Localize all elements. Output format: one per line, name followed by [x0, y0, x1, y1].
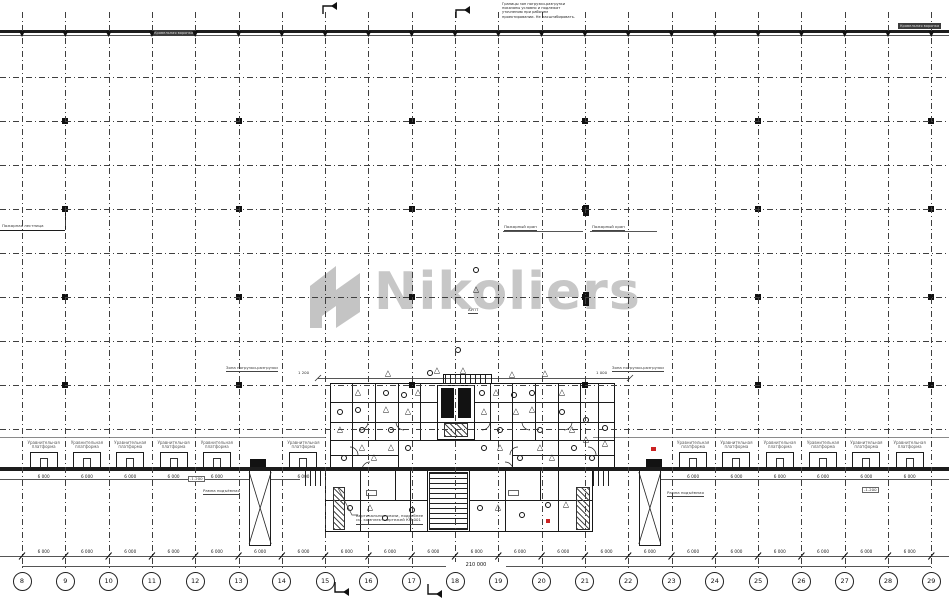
bay-dimension: 6 000 — [548, 549, 578, 554]
sub-bay-dimension: 6 000 — [808, 474, 838, 479]
bay-dimension: 6 000 — [332, 549, 362, 554]
dock-label: Уравнительнаяплатформа — [890, 441, 930, 450]
grid-line-vertical — [628, 12, 629, 571]
core-w15 — [330, 383, 615, 470]
grid-line-vertical — [412, 12, 413, 571]
grid-line-vertical — [585, 12, 586, 571]
dock-label: Уравнительнаяплатформа — [154, 441, 194, 450]
fixture-triangle-icon: △ — [473, 286, 479, 294]
grid-line-horizontal — [0, 297, 949, 298]
fire-hydrant-label-left: Пожарный кран — [504, 225, 537, 231]
section-flag-icon — [428, 584, 442, 594]
bay-dimension: 6 000 — [765, 549, 795, 554]
grid-line-vertical — [758, 12, 759, 571]
axis-bubble: 27 — [835, 572, 854, 591]
grid-line-vertical — [542, 12, 543, 571]
bay-dimension: 6 000 — [159, 549, 189, 554]
fixture-triangle-icon: △ — [434, 367, 440, 375]
axis-bubble: 11 — [142, 572, 161, 591]
grid-line-vertical — [455, 12, 456, 571]
sub-bay-dimension: 6 000 — [159, 474, 189, 479]
red-mark — [651, 447, 656, 451]
grid-line-vertical — [282, 12, 283, 571]
grid-line-vertical — [368, 12, 369, 571]
fixture-triangle-icon: △ — [385, 370, 391, 378]
axis-bubble: 22 — [619, 572, 638, 591]
partition-line — [593, 437, 949, 438]
fire-hydrant-label-right: Пожарный кран — [592, 225, 625, 231]
sub-bay-dimension: 6 000 — [115, 474, 145, 479]
loading-zone-dim-right: 1 000 — [596, 371, 607, 375]
top-wall-inner-line — [0, 35, 949, 36]
loading-zone-label-right: Зона погрузки-разгрузки — [612, 366, 664, 372]
grid-line-vertical — [672, 12, 673, 571]
fixture-circle-icon — [473, 267, 479, 273]
level-box-right: -1.200 — [862, 487, 879, 493]
bay-dimension: 6 000 — [505, 549, 535, 554]
top-note: Границы зон погрузки-разгрузки показаны … — [502, 2, 575, 19]
grid-line-vertical — [801, 12, 802, 571]
bracing-note-line: см. комплект чертежей КМ-001 — [356, 518, 423, 522]
grid-line-horizontal — [0, 209, 949, 210]
core-stH — [593, 470, 613, 486]
dock-label: Уравнительнаяплатформа — [24, 441, 64, 450]
dock-label: Уравнительнаяплатформа — [760, 441, 800, 450]
dock-ramp — [639, 470, 661, 546]
sub-bay-dimension: 6 000 — [29, 474, 59, 479]
section-flag-icon — [335, 582, 349, 592]
axis-bubble: 26 — [792, 572, 811, 591]
section-flag-icon — [456, 10, 470, 18]
loading-zone-label-left: Зона погрузки-разгрузки — [226, 366, 278, 372]
bay-dimension: 6 000 — [245, 549, 275, 554]
grid-line-horizontal — [0, 121, 949, 122]
grid-line-horizontal — [0, 341, 949, 342]
grid-line-vertical — [22, 12, 23, 571]
sub-bay-dimension: 6 000 — [895, 474, 925, 479]
partition-line — [590, 231, 657, 232]
fixture-circle-icon — [427, 370, 433, 376]
grid-line-vertical — [109, 12, 110, 571]
nikoliers-logo-icon — [306, 264, 368, 332]
sub-bay-dimension: 6 000 — [72, 474, 102, 479]
sub-bay-dimension: 6 000 — [678, 474, 708, 479]
grid-line-horizontal — [0, 77, 949, 78]
axis-bubble: 10 — [99, 572, 118, 591]
watermark: Nikoliers — [306, 262, 646, 337]
bay-dimension: 6 000 — [462, 549, 492, 554]
axis-bubble: 17 — [402, 572, 421, 591]
bay-dimension: 6 000 — [29, 549, 59, 554]
bay-dimension: 6 000 — [635, 549, 665, 554]
bay-dimension: 6 000 — [592, 549, 622, 554]
bottom-wall — [0, 467, 949, 471]
top-wall — [0, 30, 949, 33]
dock-label: Уравнительнаяплатформа — [716, 441, 756, 450]
dock-ramp — [249, 470, 271, 546]
axis-bubble: 23 — [662, 572, 681, 591]
partition-line — [0, 437, 325, 438]
sub-bay-dimension: 6 000 — [851, 474, 881, 479]
axis-bubble: 12 — [186, 572, 205, 591]
ramp-label-left: Рампа подъёмная — [203, 489, 240, 495]
axis-bubble: 20 — [532, 572, 551, 591]
axis-bubble: 24 — [705, 572, 724, 591]
bay-dimension: 6 000 — [72, 549, 102, 554]
partition-line — [0, 230, 65, 231]
axis-bubble: 19 — [489, 572, 508, 591]
axis-bubble: 21 — [575, 572, 594, 591]
total-dimension: 210 000 — [446, 562, 506, 568]
axis-bubble: 14 — [272, 572, 291, 591]
top-note-line: проектировании. Не масштабировать. — [502, 15, 575, 19]
loading-zone-dim-left: 1 200 — [298, 371, 309, 375]
grid-line-horizontal — [0, 429, 949, 430]
bay-dimension: 6 000 — [375, 549, 405, 554]
section-flag-icon — [464, 6, 470, 14]
watermark-text: Nikoliers — [374, 266, 641, 318]
partition-line — [503, 231, 583, 232]
dock-label: Уравнительнаяплатформа — [67, 441, 107, 450]
bay-dimension: 6 000 — [808, 549, 838, 554]
axis-bubble: 8 — [13, 572, 32, 591]
bracing-note: Вертикальные связи, подробнее см. компле… — [356, 514, 423, 525]
left-edge-label: Пожарная лестница — [2, 224, 44, 228]
sub-bay-dimension: 6 000 — [721, 474, 751, 479]
level-box-left: -1.200 — [188, 476, 205, 482]
core-fill — [646, 459, 662, 467]
section-flag-icon — [331, 2, 337, 10]
bay-dimension: 6 000 — [202, 549, 232, 554]
grid-line-vertical — [152, 12, 153, 571]
ramp-label-right: Рампа подъёмная — [667, 491, 704, 497]
axis-bubble: 16 — [359, 572, 378, 591]
section-flag-icon — [436, 590, 442, 598]
sub-bay-dimension: 6 000 — [202, 474, 232, 479]
dock-label: Уравнительнаяплатформа — [673, 441, 713, 450]
grid-line-vertical — [888, 12, 889, 571]
bay-dimension: 6 000 — [721, 549, 751, 554]
floor-plan-canvas: Nikoliers △△△△△△△△△△△△△△△△△△△△△△△△△△△△6 … — [0, 0, 949, 600]
grid-line-horizontal — [0, 385, 949, 386]
grid-line-vertical — [498, 12, 499, 571]
bay-dimension: 6 000 — [678, 549, 708, 554]
bay-dimension: 6 000 — [851, 549, 881, 554]
axis-bubble: 25 — [749, 572, 768, 591]
fixture-triangle-icon: △ — [542, 370, 548, 378]
dock-label: Уравнительнаяплатформа — [846, 441, 886, 450]
sub-bay-dimension: 6 000 — [288, 474, 318, 479]
roof-drain-label-left: Кровельная воронка — [152, 30, 195, 36]
aupt-label: АУПТ — [468, 308, 478, 314]
axis-bubble: 13 — [229, 572, 248, 591]
grid-line-vertical — [325, 12, 326, 571]
axis-bubble: 29 — [922, 572, 941, 591]
dock-label: Уравнительнаяплатформа — [110, 441, 150, 450]
grid-line-vertical — [931, 12, 932, 571]
grid-line-vertical — [715, 12, 716, 571]
grid-line-vertical — [195, 12, 196, 571]
grid-line-horizontal — [0, 165, 949, 166]
axis-bubble: 9 — [56, 572, 75, 591]
section-flag-icon — [343, 588, 349, 596]
grid-line-vertical — [65, 12, 66, 571]
grid-line-vertical — [845, 12, 846, 571]
axis-bubble: 18 — [446, 572, 465, 591]
bay-dimension: 6 000 — [418, 549, 448, 554]
roof-drain-label-right: Кровельная воронка — [898, 23, 941, 29]
dock-label: Уравнительнаяплатформа — [283, 441, 323, 450]
core-fill — [250, 459, 266, 467]
axis-bubble: 28 — [879, 572, 898, 591]
bay-dimension: 6 000 — [115, 549, 145, 554]
dock-label: Уравнительнаяплатформа — [803, 441, 843, 450]
bay-dimension: 6 000 — [288, 549, 318, 554]
dimension-line — [0, 556, 949, 557]
axis-bubble: 15 — [316, 572, 335, 591]
dock-label: Уравнительнаяплатформа — [197, 441, 237, 450]
bay-dimension: 6 000 — [895, 549, 925, 554]
grid-line-horizontal — [0, 253, 949, 254]
sub-bay-dimension: 6 000 — [765, 474, 795, 479]
